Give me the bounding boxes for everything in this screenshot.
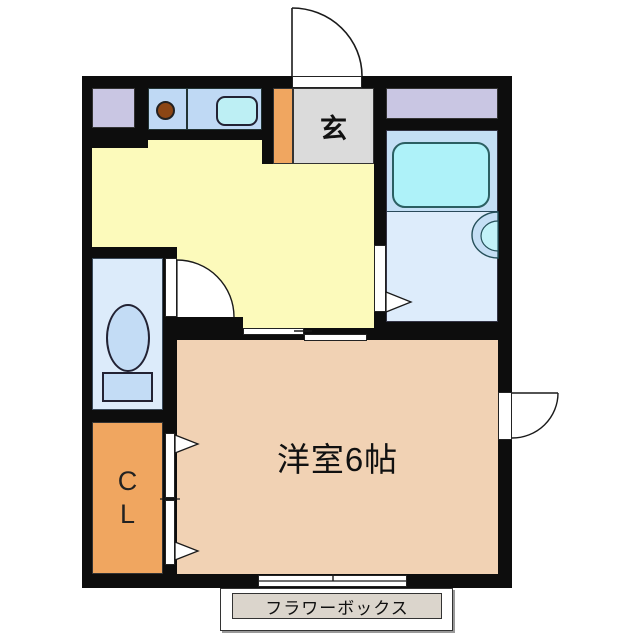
bathtub — [392, 142, 490, 208]
toilet-doorway — [165, 258, 177, 317]
room-closet: C L — [92, 422, 163, 574]
entrance-door-swing-icon — [292, 8, 362, 76]
bedroom-label: 洋室6帖 — [277, 433, 398, 481]
closet-label-c: C — [118, 468, 138, 495]
closet-label-l: L — [120, 501, 135, 528]
washing-machine-space — [386, 88, 498, 119]
room-washroom — [387, 212, 497, 321]
flower-box: フラワーボックス — [232, 593, 442, 619]
closet-door-panel-bottom — [165, 500, 175, 565]
floorplan-canvas: 洋室6帖 玄 C L — [0, 0, 640, 640]
closet-door-panel-top — [165, 433, 175, 498]
room-western-bedroom: 洋室6帖 — [177, 340, 498, 574]
kitchen-sink — [216, 96, 258, 126]
wall-bedroom-top-right — [374, 322, 512, 340]
sliding-door-panel-right — [304, 334, 367, 341]
toilet-bowl — [106, 304, 150, 372]
wall-washer-bottom — [386, 119, 498, 130]
washroom-doorway — [374, 245, 386, 312]
wall-counter-genkan — [262, 88, 273, 164]
wall-fridge-bottom — [92, 128, 148, 148]
bedroom-window — [258, 575, 407, 587]
wall-counter-bottom — [148, 130, 262, 140]
counter-divider — [186, 88, 188, 130]
stove-burner-icon — [156, 101, 175, 120]
bedroom-doorway — [498, 392, 512, 440]
flower-box-label: フラワーボックス — [265, 594, 409, 619]
wall-bedroom-top-left — [163, 317, 243, 340]
entrance-doorway — [292, 76, 362, 88]
genkan-step — [273, 88, 293, 164]
room-genkan: 玄 — [293, 88, 374, 164]
sliding-door-panel-left — [243, 328, 304, 335]
bedroom-door-swing-icon — [512, 393, 558, 438]
toilet-tank — [102, 372, 153, 402]
genkan-label: 玄 — [320, 107, 347, 146]
refrigerator-space — [92, 88, 135, 128]
wall-toilet-top — [82, 247, 177, 258]
